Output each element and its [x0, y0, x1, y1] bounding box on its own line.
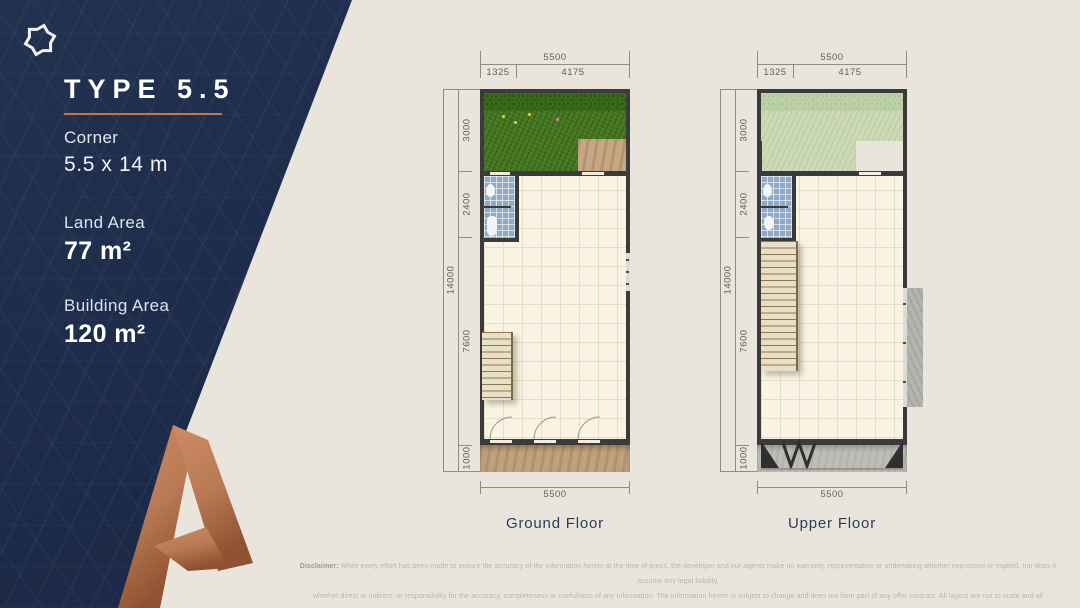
- brochure-page: TYPE 5.5 Corner 5.5 x 14 m Land Area 77 …: [0, 0, 1080, 608]
- dim-side-seg2: 2400: [462, 192, 473, 215]
- dim-side-total: 14000: [723, 266, 734, 295]
- upper-floor-plan: 5500 1325 4175 14000 3000 2400 7600 1000…: [757, 89, 907, 472]
- door-swing-arcs: [480, 89, 630, 472]
- disclaimer-line1: While every effort has been made to ensu…: [341, 563, 1057, 585]
- unit-position-label: Corner: [64, 128, 118, 148]
- ground-floor-plan: 5500 1325 4175 14000 3000 2400 7600 1000…: [480, 89, 630, 472]
- dim-top-left: 1325: [480, 67, 516, 78]
- type-title: TYPE 5.5: [64, 74, 236, 105]
- land-area-label: Land Area: [64, 213, 145, 233]
- dim-bottom-total: 5500: [480, 489, 630, 500]
- dim-bottom-total: 5500: [757, 489, 907, 500]
- title-accent-underline: [64, 113, 222, 115]
- building-area-label: Building Area: [64, 296, 169, 316]
- dim-side-seg3: 7600: [462, 329, 473, 352]
- side-ledge: [906, 288, 923, 407]
- dim-side-seg4: 1000: [462, 446, 473, 469]
- dim-top-right: 4175: [516, 67, 630, 78]
- disclaimer-line2: whether direct or indirect, or responsib…: [313, 593, 1043, 608]
- rear-deck: [480, 445, 630, 472]
- dim-side-total: 14000: [446, 266, 457, 295]
- disclaimer-text: Disclaimer: While every effort has been …: [298, 559, 1058, 608]
- pinwheel-snowflake-icon: [20, 20, 60, 60]
- upper-floor-label: Upper Floor: [757, 515, 907, 532]
- building-area-value: 120 m²: [64, 320, 146, 349]
- dim-side-seg2: 2400: [739, 192, 750, 215]
- dim-top-right: 4175: [793, 67, 907, 78]
- plot-size-label: 5.5 x 14 m: [64, 153, 168, 177]
- dim-side-seg4: 1000: [739, 446, 750, 469]
- balcony-details: [757, 89, 907, 472]
- dim-side-seg3: 7600: [739, 329, 750, 352]
- disclaimer-prefix: Disclaimer:: [300, 563, 339, 570]
- land-area-value: 77 m²: [64, 237, 131, 266]
- dim-side-seg1: 3000: [739, 118, 750, 141]
- dim-side-seg1: 3000: [462, 118, 473, 141]
- ground-floor-label: Ground Floor: [480, 515, 630, 532]
- dim-top-total: 5500: [480, 52, 630, 63]
- dim-top-total: 5500: [757, 52, 907, 63]
- dim-top-left: 1325: [757, 67, 793, 78]
- letter-a-mark-icon: [88, 418, 258, 608]
